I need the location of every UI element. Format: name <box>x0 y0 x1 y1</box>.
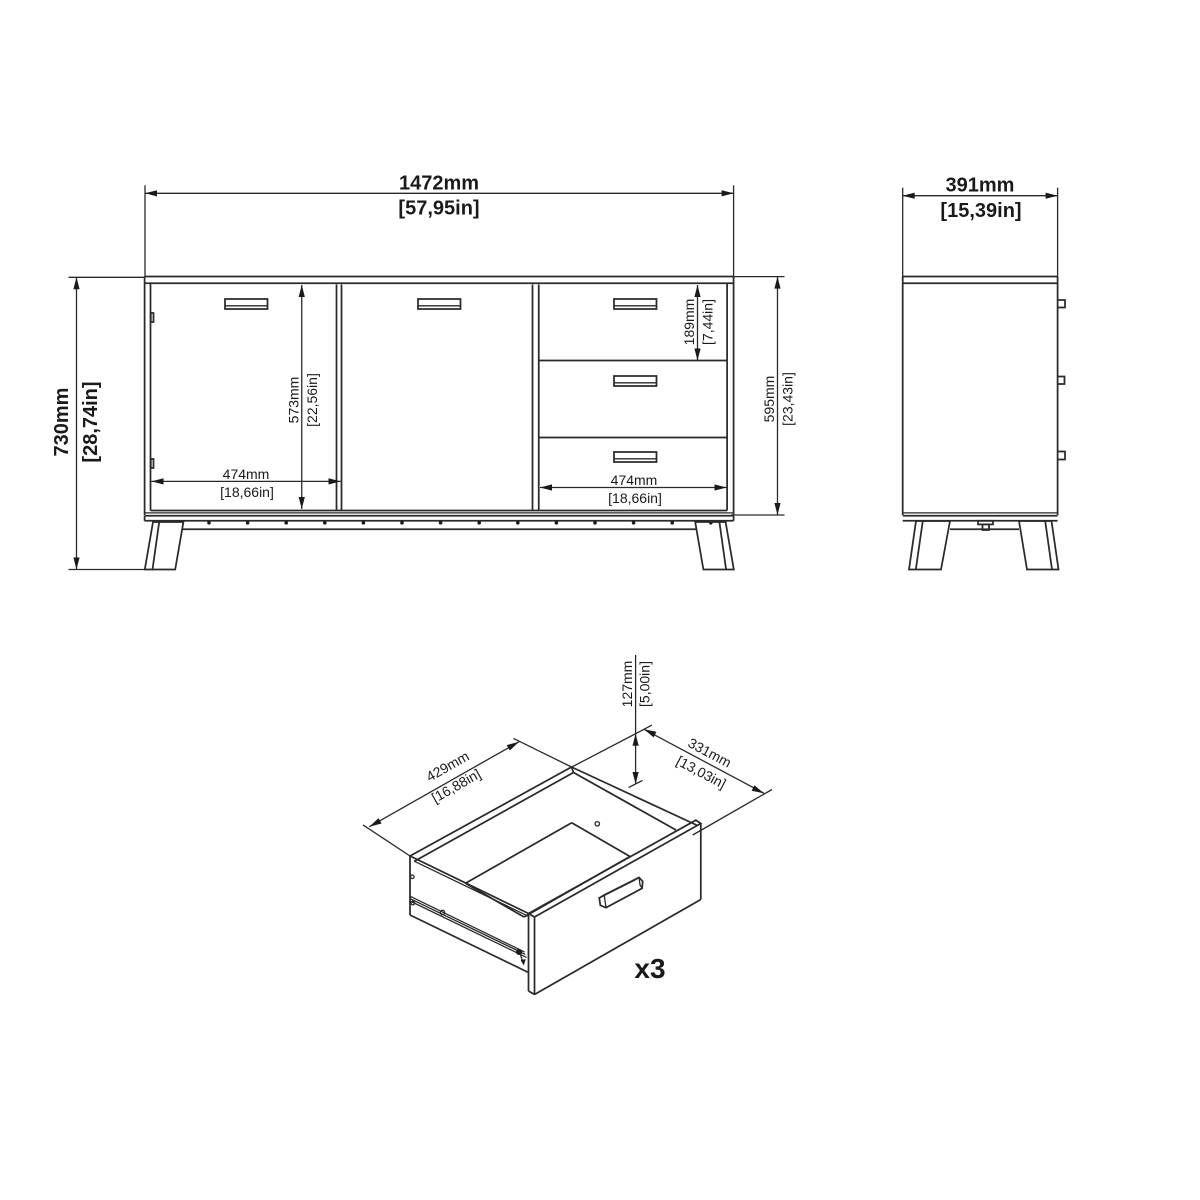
svg-text:573mm: 573mm <box>286 377 302 424</box>
svg-text:[23,43in]: [23,43in] <box>780 372 796 426</box>
svg-text:474mm: 474mm <box>611 472 658 488</box>
svg-text:127mm: 127mm <box>619 661 635 708</box>
svg-text:1472mm: 1472mm <box>399 173 479 195</box>
svg-text:[5,00in]: [5,00in] <box>637 661 653 707</box>
svg-text:391mm: 391mm <box>946 175 1015 197</box>
svg-text:[15,39in]: [15,39in] <box>940 200 1021 222</box>
svg-text:x3: x3 <box>634 953 665 984</box>
svg-text:[57,95in]: [57,95in] <box>398 198 479 220</box>
svg-text:474mm: 474mm <box>223 466 270 482</box>
svg-text:595mm: 595mm <box>761 376 777 423</box>
svg-text:[18,66in]: [18,66in] <box>220 484 274 500</box>
svg-text:[22,56in]: [22,56in] <box>304 373 320 427</box>
svg-text:[7,44in]: [7,44in] <box>700 299 716 345</box>
svg-text:189mm: 189mm <box>681 299 697 346</box>
svg-text:[28,74in]: [28,74in] <box>80 381 102 462</box>
svg-text:730mm: 730mm <box>51 388 73 457</box>
svg-text:[18,66in]: [18,66in] <box>608 490 662 506</box>
